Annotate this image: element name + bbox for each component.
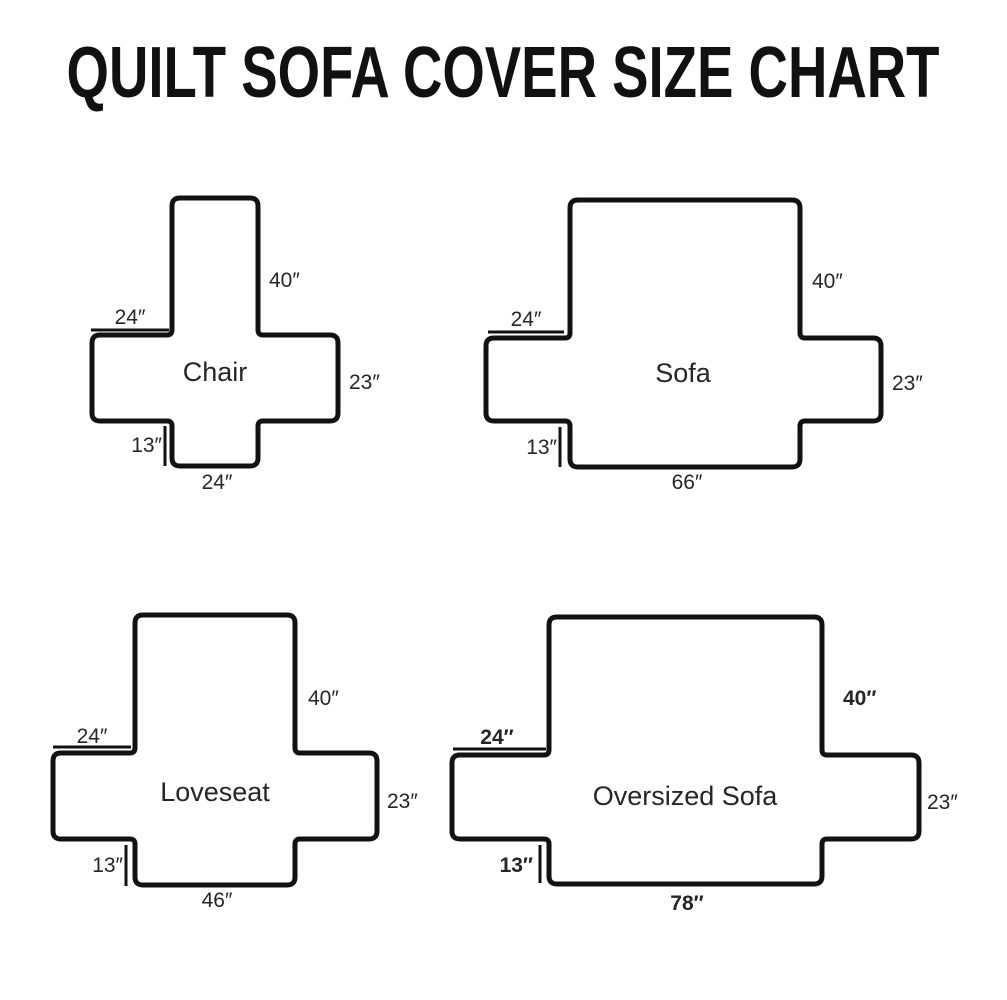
oversized-sofa-name-label: Oversized Sofa — [593, 781, 779, 811]
loveseat-front-width-label: 46″ — [202, 889, 233, 912]
oversized-sofa-front-drop-label: 13″ — [500, 854, 533, 877]
sofa-name-label: Sofa — [655, 358, 712, 388]
sofa-back-width-label: 24″ — [511, 308, 542, 331]
chair-back-height-label: 40″ — [269, 269, 300, 292]
loveseat-outline — [53, 615, 377, 885]
chair-front-drop-label: 13″ — [131, 434, 162, 457]
loveseat-front-drop-label: 13″ — [92, 854, 123, 877]
page-title: QUILT SOFA COVER SIZE CHART — [67, 33, 940, 113]
chair-outline — [92, 198, 338, 466]
sofa-front-width-label: 66″ — [672, 471, 703, 494]
oversized-sofa-arm-side-label: 23″ — [927, 791, 958, 814]
size-chart-canvas: QUILT SOFA COVER SIZE CHART 40″ 24″ Chai… — [0, 0, 1007, 1000]
sofa-front-drop-label: 13″ — [526, 436, 557, 459]
chair-front-width-label: 24″ — [202, 471, 233, 494]
loveseat-name-label: Loveseat — [160, 777, 270, 807]
sofa-arm-side-label: 23″ — [892, 372, 923, 395]
oversized-sofa-back-height-label: 40″ — [843, 687, 876, 710]
oversized-sofa-back-width-label: 24″ — [480, 726, 513, 749]
chair-back-width-label: 24″ — [115, 306, 146, 329]
chair-arm-side-label: 23″ — [349, 371, 380, 394]
size-chart-page: QUILT SOFA COVER SIZE CHART 40″ 24″ Chai… — [0, 0, 1007, 1000]
loveseat-back-height-label: 40″ — [308, 687, 339, 710]
sofa-back-height-label: 40″ — [812, 270, 843, 293]
oversized-sofa-front-width-label: 78″ — [670, 892, 703, 915]
loveseat-arm-side-label: 23″ — [387, 790, 418, 813]
loveseat-back-width-label: 24″ — [77, 725, 108, 748]
chair-name-label: Chair — [183, 357, 248, 387]
